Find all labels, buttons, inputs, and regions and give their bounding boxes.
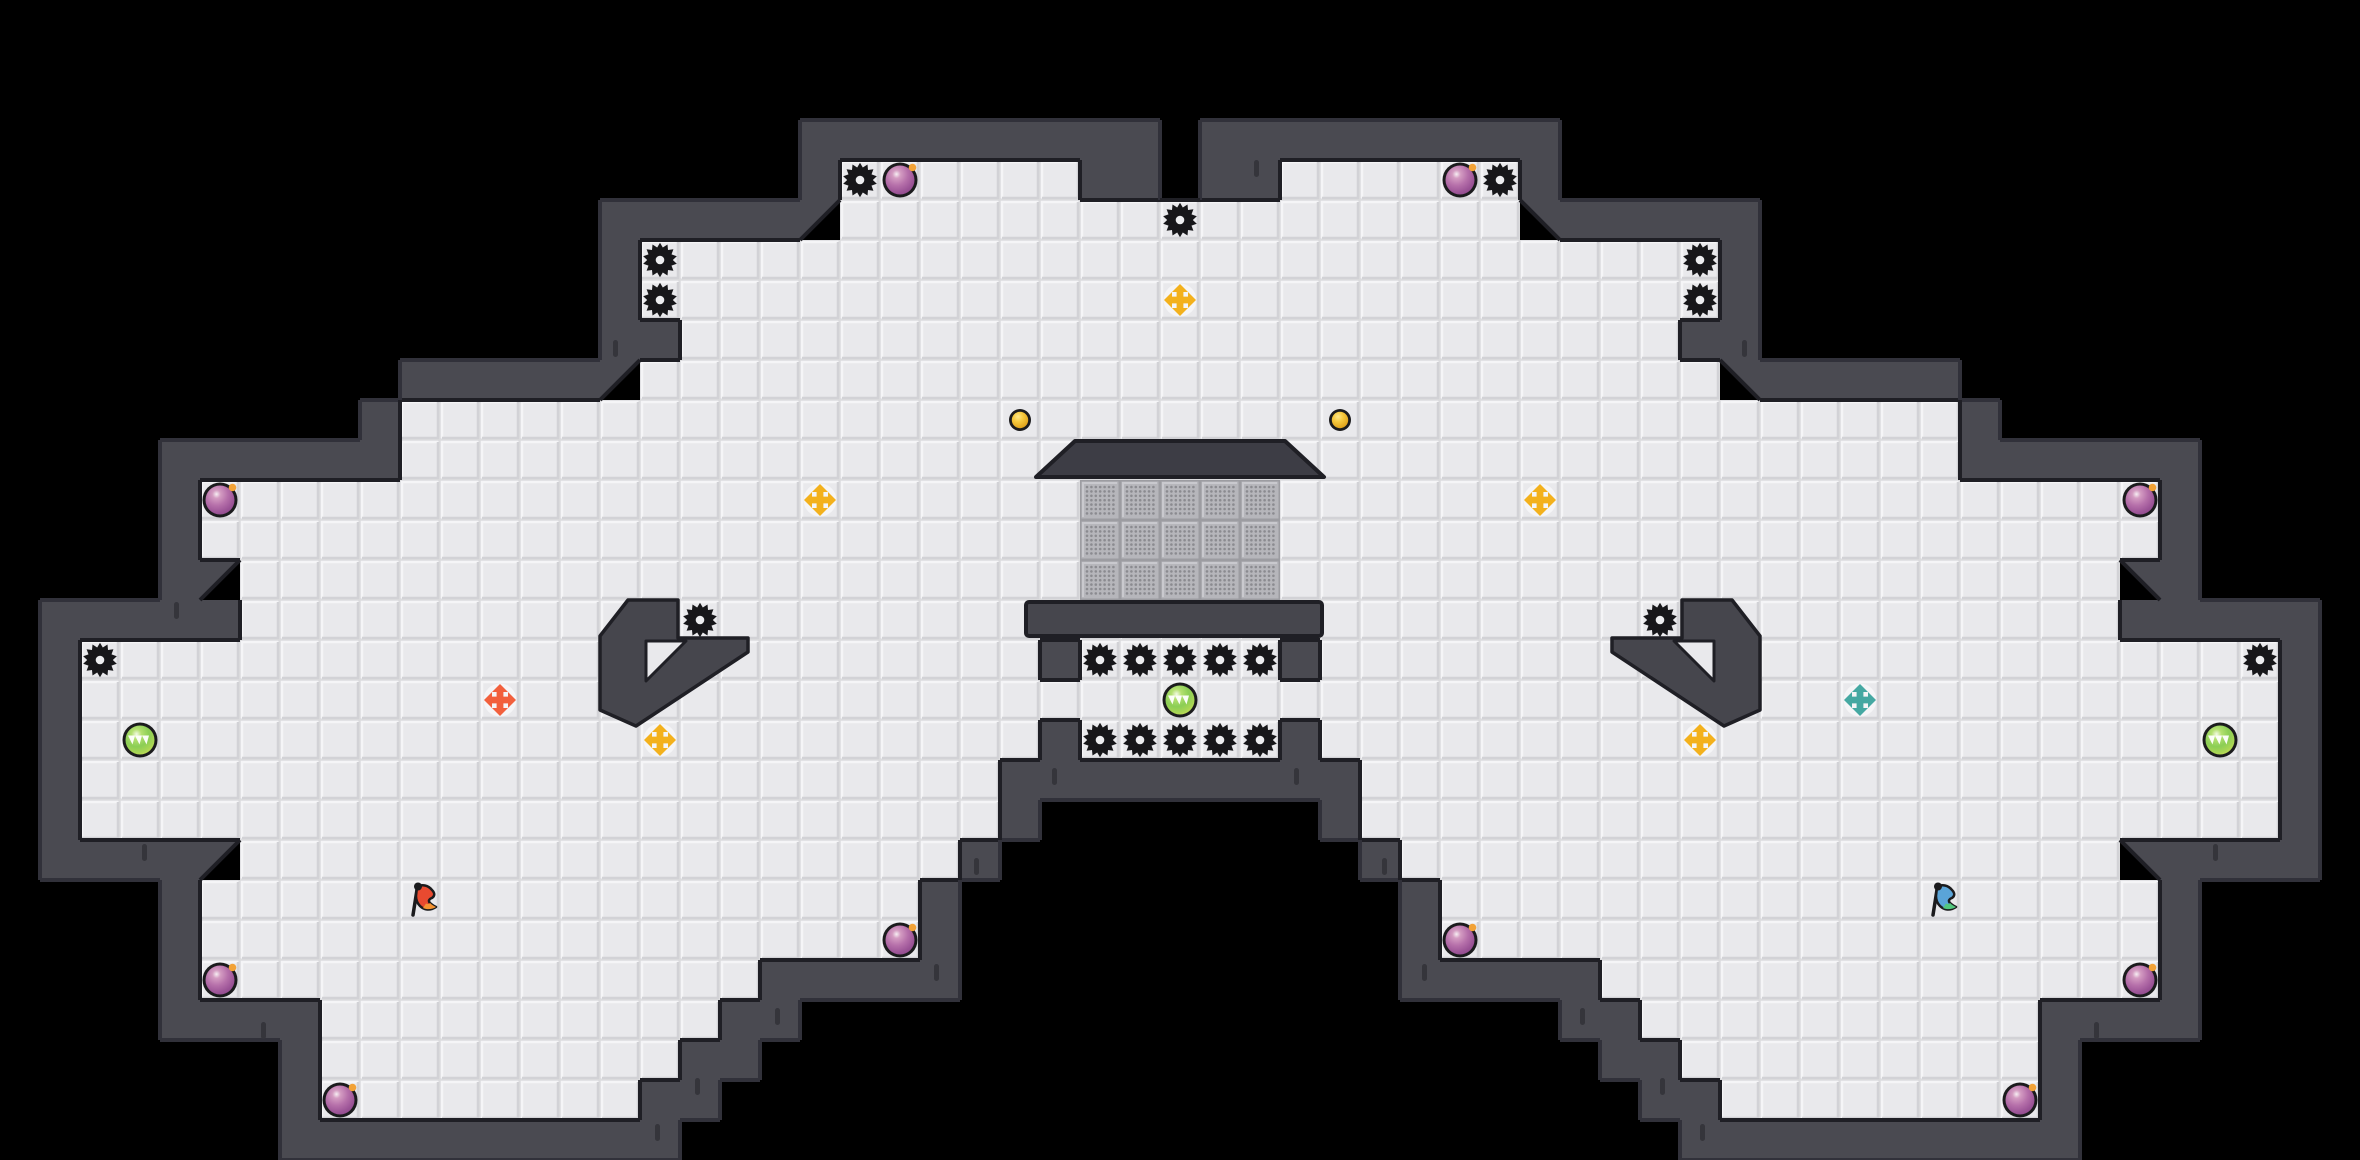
- floor-tile: [440, 960, 480, 1000]
- platform-structure: [1026, 602, 1322, 636]
- floor-tile: [480, 1080, 520, 1120]
- floor-tile: [1760, 800, 1800, 840]
- wall-tile: [1760, 1120, 1800, 1160]
- floor-tile: [840, 920, 880, 960]
- floor-tile: [2040, 560, 2080, 600]
- floor-tile: [840, 400, 880, 440]
- wall-tile: [520, 360, 560, 400]
- floor-tile: [1000, 720, 1040, 760]
- floor-tile: [1600, 320, 1640, 360]
- floor-tile: [1560, 760, 1600, 800]
- floor-tile: [1560, 360, 1600, 400]
- floor-tile: [440, 400, 480, 440]
- wall-tile: [1720, 200, 1760, 240]
- bomb-icon: [2123, 963, 2158, 998]
- floor-tile: [120, 800, 160, 840]
- floor-tile: [1520, 320, 1560, 360]
- floor-tile: [1360, 800, 1400, 840]
- wall-tile: [680, 200, 720, 240]
- floor-tile: [760, 640, 800, 680]
- floor-tile: [1400, 800, 1440, 840]
- gate-tile: [1200, 520, 1240, 560]
- floor-tile: [1360, 200, 1400, 240]
- floor-tile: [1440, 400, 1480, 440]
- floor-tile: [1920, 1000, 1960, 1040]
- floor-tile: [1720, 1040, 1760, 1080]
- floor-tile: [240, 560, 280, 600]
- floor-tile: [1480, 680, 1520, 720]
- floor-tile: [2200, 760, 2240, 800]
- floor-tile: [520, 960, 560, 1000]
- wall-crack: [974, 858, 979, 875]
- floor-tile: [1120, 280, 1160, 320]
- floor-tile: [920, 720, 960, 760]
- floor-tile: [720, 440, 760, 480]
- wall-tile: [1440, 120, 1480, 160]
- floor-tile: [1440, 520, 1480, 560]
- gate-tile: [1080, 480, 1120, 520]
- floor-tile: [840, 240, 880, 280]
- wall-tile: [1320, 120, 1360, 160]
- floor-tile: [1800, 1080, 1840, 1120]
- floor-tile: [1400, 240, 1440, 280]
- floor-tile: [320, 920, 360, 960]
- wall-tile: [1040, 760, 1080, 800]
- floor-tile: [1640, 920, 1680, 960]
- floor-tile: [760, 240, 800, 280]
- wall-tile: [80, 840, 120, 880]
- floor-tile: [1960, 1040, 2000, 1080]
- floor-tile: [880, 800, 920, 840]
- floor-tile: [1280, 680, 1320, 720]
- floor-tile: [440, 920, 480, 960]
- floor-tile: [600, 1040, 640, 1080]
- floor-tile: [1080, 320, 1120, 360]
- wall-tile: [240, 440, 280, 480]
- floor-tile: [800, 360, 840, 400]
- floor-tile: [880, 280, 920, 320]
- wall-tile: [1720, 280, 1760, 320]
- wall-tile: [2160, 520, 2200, 560]
- floor-tile: [720, 520, 760, 560]
- floor-tile: [640, 920, 680, 960]
- floor-tile: [1400, 320, 1440, 360]
- floor-tile: [1480, 400, 1520, 440]
- floor-tile: [440, 1080, 480, 1120]
- floor-tile: [1800, 880, 1840, 920]
- bomb-icon: [883, 923, 918, 958]
- floor-tile: [720, 600, 760, 640]
- wall-tile: [440, 1120, 480, 1160]
- floor-tile: [760, 680, 800, 720]
- wall-tile: [2120, 600, 2160, 640]
- floor-tile: [1320, 720, 1360, 760]
- wall-tile: [1360, 840, 1400, 880]
- floor-tile: [360, 880, 400, 920]
- floor-tile: [1440, 480, 1480, 520]
- floor-tile: [1240, 240, 1280, 280]
- floor-tile: [1520, 640, 1560, 680]
- floor-tile: [1160, 360, 1200, 400]
- floor-tile: [600, 840, 640, 880]
- gate-tile: [1240, 520, 1280, 560]
- floor-tile: [1760, 1000, 1800, 1040]
- floor-tile: [1680, 560, 1720, 600]
- floor-tile: [1760, 440, 1800, 480]
- floor-tile: [400, 1080, 440, 1120]
- floor-tile: [2040, 640, 2080, 680]
- boost-yellow-icon: [1524, 484, 1557, 517]
- boost-yellow-icon: [1684, 724, 1717, 757]
- floor-tile: [1960, 760, 2000, 800]
- floor-tile: [2000, 1000, 2040, 1040]
- floor-tile: [1480, 560, 1520, 600]
- floor-tile: [1080, 400, 1120, 440]
- floor-tile: [520, 840, 560, 880]
- floor-tile: [360, 760, 400, 800]
- floor-tile: [320, 600, 360, 640]
- floor-tile: [1560, 240, 1600, 280]
- floor-tile: [1840, 840, 1880, 880]
- floor-tile: [1680, 880, 1720, 920]
- floor-tile: [440, 600, 480, 640]
- floor-tile: [80, 720, 120, 760]
- floor-tile: [320, 880, 360, 920]
- floor-tile: [560, 800, 600, 840]
- floor-tile: [400, 400, 440, 440]
- floor-tile: [960, 440, 1000, 480]
- wall-tile: [1400, 920, 1440, 960]
- floor-tile: [960, 200, 1000, 240]
- floor-tile: [1040, 360, 1080, 400]
- floor-tile: [560, 960, 600, 1000]
- floor-tile: [680, 320, 720, 360]
- floor-tile: [2240, 680, 2280, 720]
- floor-tile: [1880, 960, 1920, 1000]
- floor-tile: [1760, 920, 1800, 960]
- wall-tile: [1680, 320, 1720, 360]
- floor-tile: [840, 720, 880, 760]
- floor-tile: [680, 280, 720, 320]
- wall-tile: [2120, 440, 2160, 480]
- wall-crack: [1052, 768, 1057, 785]
- powerup-jukejuice-icon: [2203, 723, 2238, 758]
- floor-tile: [1920, 520, 1960, 560]
- wall-crack: [655, 1124, 660, 1141]
- wall-tile: [400, 360, 440, 400]
- floor-tile: [1120, 240, 1160, 280]
- floor-tile: [1440, 320, 1480, 360]
- floor-tile: [760, 800, 800, 840]
- gate-tile: [1200, 560, 1240, 600]
- floor-tile: [800, 720, 840, 760]
- floor-tile: [920, 560, 960, 600]
- wall-tile: [1560, 960, 1600, 1000]
- floor-tile: [800, 880, 840, 920]
- floor-tile: [2000, 520, 2040, 560]
- floor-tile: [1080, 680, 1120, 720]
- wall-tile: [1720, 1120, 1760, 1160]
- wall-tile: [360, 1120, 400, 1160]
- floor-tile: [2120, 640, 2160, 680]
- wall-tile: [840, 960, 880, 1000]
- wall-tile: [640, 320, 680, 360]
- floor-tile: [760, 360, 800, 400]
- floor-tile: [880, 640, 920, 680]
- floor-tile: [760, 880, 800, 920]
- floor-tile: [1200, 400, 1240, 440]
- floor-tile: [1360, 440, 1400, 480]
- floor-tile: [1800, 840, 1840, 880]
- wall-tile: [560, 360, 600, 400]
- floor-tile: [1920, 1040, 1960, 1080]
- floor-tile: [1880, 640, 1920, 680]
- wall-tile: [440, 360, 480, 400]
- floor-tile: [920, 440, 960, 480]
- floor-tile: [440, 640, 480, 680]
- floor-tile: [1320, 360, 1360, 400]
- floor-tile: [1320, 520, 1360, 560]
- floor-tile: [1640, 720, 1680, 760]
- wall-tile: [120, 840, 160, 880]
- floor-tile: [320, 560, 360, 600]
- floor-tile: [640, 1000, 680, 1040]
- floor-tile: [1560, 400, 1600, 440]
- floor-tile: [1760, 880, 1800, 920]
- floor-tile: [840, 280, 880, 320]
- floor-tile: [360, 800, 400, 840]
- floor-tile: [880, 240, 920, 280]
- wall-tile: [720, 200, 760, 240]
- floor-tile: [600, 960, 640, 1000]
- wall-tile: [1680, 200, 1720, 240]
- floor-tile: [1680, 760, 1720, 800]
- floor-tile: [360, 520, 400, 560]
- floor-tile: [1640, 1000, 1680, 1040]
- floor-tile: [680, 920, 720, 960]
- bomb-icon: [2003, 1083, 2038, 1118]
- floor-tile: [560, 880, 600, 920]
- floor-tile: [240, 880, 280, 920]
- floor-tile: [200, 760, 240, 800]
- floor-tile: [760, 560, 800, 600]
- floor-tile: [800, 440, 840, 480]
- floor-tile: [1600, 680, 1640, 720]
- wall-tile: [2280, 840, 2320, 880]
- floor-tile: [1840, 440, 1880, 480]
- floor-tile: [1920, 760, 1960, 800]
- floor-tile: [880, 600, 920, 640]
- wall-tile: [1800, 1120, 1840, 1160]
- floor-tile: [1840, 520, 1880, 560]
- wall-tile: [2160, 880, 2200, 920]
- floor-tile: [1640, 520, 1680, 560]
- floor-tile: [320, 720, 360, 760]
- floor-tile: [320, 840, 360, 880]
- wall-tile: [1280, 120, 1320, 160]
- floor-tile: [880, 560, 920, 600]
- wall-tile: [1080, 120, 1120, 160]
- wall-tile: [1280, 640, 1320, 680]
- floor-tile: [2200, 640, 2240, 680]
- floor-tile: [920, 760, 960, 800]
- floor-tile: [760, 480, 800, 520]
- wall-tile: [2280, 800, 2320, 840]
- floor-tile: [1800, 760, 1840, 800]
- floor-tile: [1920, 600, 1960, 640]
- floor-tile: [1960, 680, 2000, 720]
- floor-tile: [920, 600, 960, 640]
- floor-tile: [680, 560, 720, 600]
- floor-tile: [1760, 1080, 1800, 1120]
- wall-tile: [1960, 440, 2000, 480]
- floor-tile: [720, 480, 760, 520]
- boost-red-icon: [484, 684, 517, 717]
- floor-tile: [1520, 360, 1560, 400]
- floor-tile: [760, 440, 800, 480]
- wall-tile: [1880, 360, 1920, 400]
- floor-tile: [440, 720, 480, 760]
- floor-tile: [280, 520, 320, 560]
- floor-tile: [1000, 520, 1040, 560]
- floor-tile: [1800, 400, 1840, 440]
- floor-tile: [1840, 880, 1880, 920]
- floor-tile: [1480, 440, 1520, 480]
- floor-tile: [880, 840, 920, 880]
- wall-tile: [920, 920, 960, 960]
- floor-tile: [80, 800, 120, 840]
- wall-tile: [1680, 1080, 1720, 1120]
- wall-tile: [1280, 720, 1320, 760]
- wall-tile: [1120, 120, 1160, 160]
- floor-tile: [480, 720, 520, 760]
- floor-tile: [280, 480, 320, 520]
- floor-tile: [840, 360, 880, 400]
- floor-tile: [1000, 160, 1040, 200]
- wall-tile: [1640, 200, 1680, 240]
- floor-tile: [720, 800, 760, 840]
- floor-tile: [480, 920, 520, 960]
- floor-tile: [2000, 480, 2040, 520]
- floor-tile: [2040, 960, 2080, 1000]
- floor-tile: [1760, 760, 1800, 800]
- wall-crack: [261, 1022, 266, 1039]
- floor-tile: [1520, 800, 1560, 840]
- floor-tile: [800, 280, 840, 320]
- floor-tile: [1480, 200, 1520, 240]
- wall-tile: [2040, 440, 2080, 480]
- map-canvas[interactable]: [0, 0, 2360, 1160]
- wall-crack: [1660, 1078, 1665, 1095]
- floor-tile: [1000, 480, 1040, 520]
- gate-tile: [1080, 560, 1120, 600]
- floor-tile: [1720, 960, 1760, 1000]
- floor-tile: [1760, 520, 1800, 560]
- floor-tile: [920, 400, 960, 440]
- floor-tile: [880, 360, 920, 400]
- floor-tile: [1880, 680, 1920, 720]
- wall-tile: [1200, 120, 1240, 160]
- floor-tile: [800, 680, 840, 720]
- wall-tile: [560, 1120, 600, 1160]
- boost-yellow-icon: [644, 724, 677, 757]
- floor-tile: [440, 440, 480, 480]
- floor-tile: [440, 520, 480, 560]
- floor-tile: [2080, 920, 2120, 960]
- floor-tile: [240, 720, 280, 760]
- floor-tile: [2040, 600, 2080, 640]
- floor-tile: [600, 800, 640, 840]
- wall-tile: [760, 960, 800, 1000]
- wall-tile: [1320, 800, 1360, 840]
- floor-tile: [640, 880, 680, 920]
- floor-tile: [1880, 560, 1920, 600]
- wall-tile: [2200, 840, 2240, 880]
- floor-tile: [600, 760, 640, 800]
- floor-tile: [1600, 480, 1640, 520]
- wall-tile: [1640, 1040, 1680, 1080]
- floor-tile: [2000, 920, 2040, 960]
- wall-tile: [1120, 160, 1160, 200]
- floor-tile: [1480, 840, 1520, 880]
- wall-crack: [1422, 964, 1427, 981]
- floor-tile: [1520, 280, 1560, 320]
- floor-tile: [1880, 520, 1920, 560]
- floor-tile: [2040, 800, 2080, 840]
- bomb-icon: [1443, 923, 1478, 958]
- floor-tile: [1680, 960, 1720, 1000]
- floor-tile: [2080, 760, 2120, 800]
- wall-tile: [2160, 600, 2200, 640]
- wall-tile: [160, 560, 200, 600]
- floor-tile: [480, 760, 520, 800]
- floor-tile: [520, 760, 560, 800]
- floor-tile: [1600, 920, 1640, 960]
- floor-tile: [960, 800, 1000, 840]
- floor-tile: [2000, 560, 2040, 600]
- floor-tile: [160, 720, 200, 760]
- floor-tile: [480, 400, 520, 440]
- floor-tile: [2040, 480, 2080, 520]
- floor-tile: [1160, 400, 1200, 440]
- floor-tile: [880, 760, 920, 800]
- floor-tile: [600, 920, 640, 960]
- floor-tile: [1040, 400, 1080, 440]
- floor-tile: [1440, 600, 1480, 640]
- wall-tile: [2280, 600, 2320, 640]
- floor-tile: [1240, 320, 1280, 360]
- wall-tile: [2160, 920, 2200, 960]
- floor-tile: [760, 840, 800, 880]
- floor-tile: [760, 920, 800, 960]
- floor-tile: [1560, 560, 1600, 600]
- floor-tile: [1200, 200, 1240, 240]
- floor-tile: [1520, 600, 1560, 640]
- floor-tile: [600, 400, 640, 440]
- bomb-icon: [1443, 163, 1478, 198]
- floor-tile: [2120, 920, 2160, 960]
- floor-tile: [1040, 560, 1080, 600]
- floor-tile: [1360, 680, 1400, 720]
- floor-tile: [2000, 680, 2040, 720]
- floor-tile: [1880, 880, 1920, 920]
- floor-tile: [360, 640, 400, 680]
- floor-tile: [1320, 680, 1360, 720]
- floor-tile: [320, 1040, 360, 1080]
- gate-tile: [1240, 560, 1280, 600]
- floor-tile: [880, 520, 920, 560]
- floor-tile: [1720, 560, 1760, 600]
